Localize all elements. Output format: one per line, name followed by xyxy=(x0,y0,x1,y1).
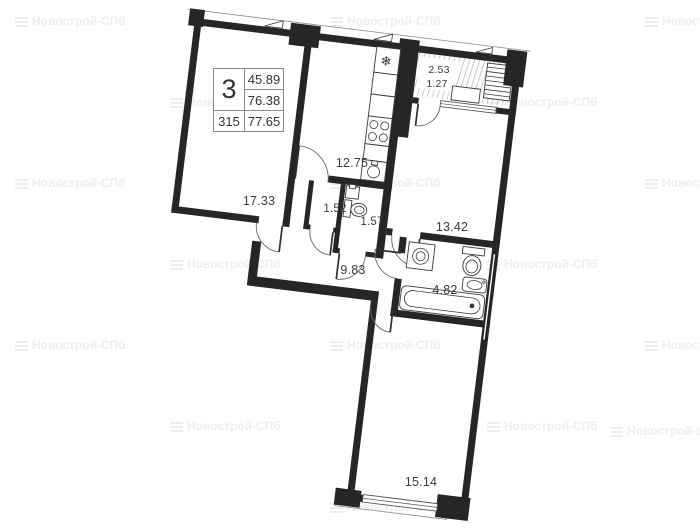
toilet-cistern xyxy=(462,246,485,256)
wall-pier xyxy=(188,8,205,27)
label-closet-area: 1.52 xyxy=(323,203,346,215)
bathroom-fixtures xyxy=(399,240,491,320)
stamp-rooms-count: 3 xyxy=(214,69,244,111)
wall-pier xyxy=(334,488,362,508)
stamp-total-area: 77.65 xyxy=(245,110,283,131)
label-bathroom-area: 4.82 xyxy=(432,283,457,297)
stamp-apartment-number: 315 xyxy=(214,111,244,131)
fridge-snowflake-icon: ❄ xyxy=(380,54,393,70)
floorplan-screenshot: Новострой-СПб Новострой-СПб Новострой-СП… xyxy=(0,0,700,531)
wall-pier xyxy=(435,494,471,521)
cabinet xyxy=(371,72,398,97)
window-vent-icon xyxy=(476,46,493,54)
washing-machine-icon xyxy=(406,242,435,271)
stamp-living-area: 45.89 xyxy=(245,69,283,89)
label-living-room-area: 15.14 xyxy=(405,475,437,489)
label-balcony-full: 2.53 xyxy=(428,64,449,76)
label-hallway-area: 9.83 xyxy=(340,263,365,277)
label-wc-area: 1.57 xyxy=(360,216,383,228)
apartment-stamp: 3 315 45.89 76.38 77.65 xyxy=(213,68,284,132)
cabinet xyxy=(368,94,395,119)
balcony-door xyxy=(416,104,441,129)
wc-fixtures xyxy=(343,184,370,220)
kitchen-door xyxy=(295,146,332,183)
balcony-box xyxy=(451,86,480,103)
bath-sink-icon xyxy=(462,277,488,294)
label-balcony-reduced: 1.27 xyxy=(426,78,447,90)
stamp-area-without-balcony: 76.38 xyxy=(245,89,283,110)
wall-pier xyxy=(503,49,527,87)
label-kitchen-area: 12.75 xyxy=(336,156,368,170)
label-bedroom-area: 13.42 xyxy=(436,220,468,234)
wall-pier xyxy=(288,23,320,48)
label-room1-area: 17.33 xyxy=(243,194,275,208)
stove-icon xyxy=(365,116,392,147)
closet-door xyxy=(307,230,333,256)
